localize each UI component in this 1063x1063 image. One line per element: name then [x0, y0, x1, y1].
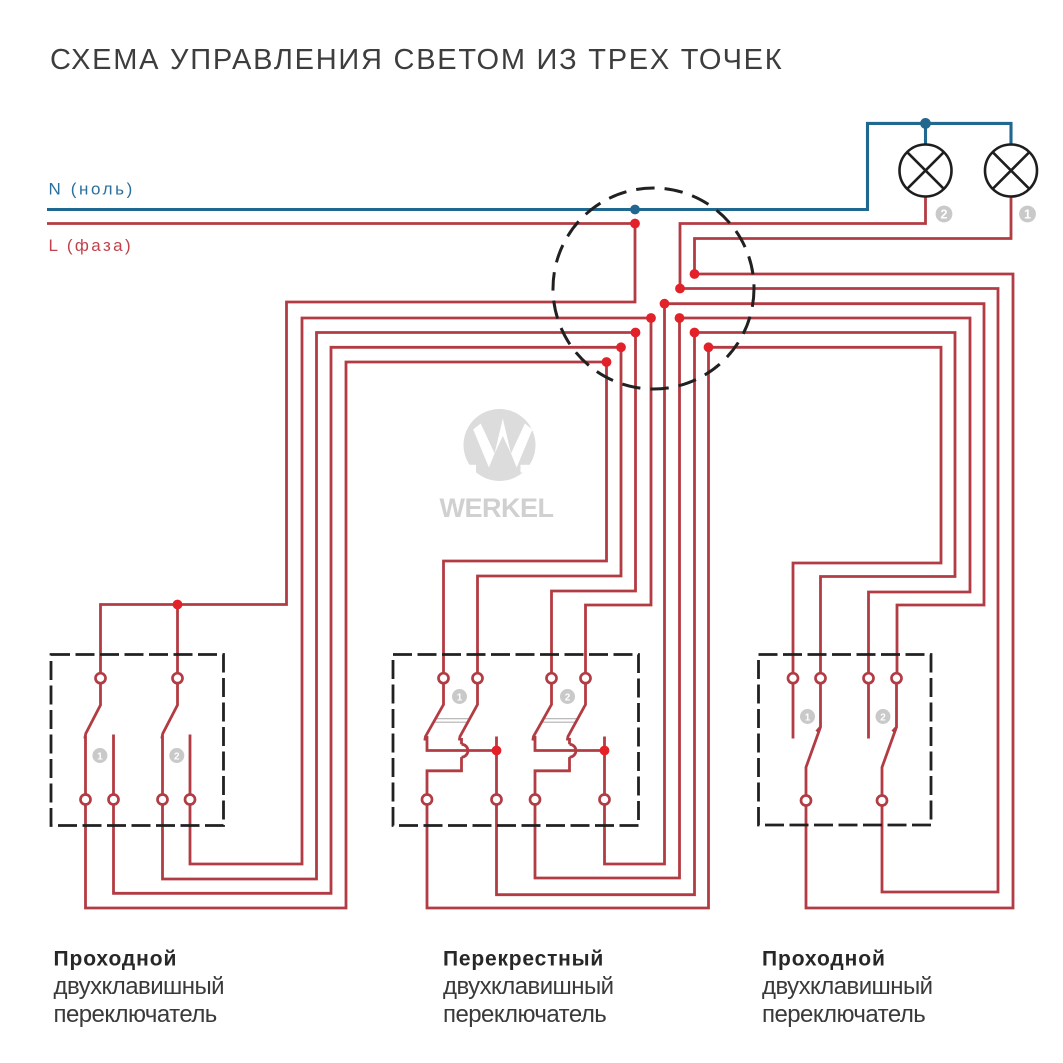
svg-text:переключатель: переключатель: [54, 1001, 217, 1028]
svg-text:переключатель: переключатель: [762, 1001, 925, 1028]
svg-text:переключатель: переключатель: [443, 1001, 606, 1028]
svg-text:2: 2: [880, 713, 886, 724]
svg-text:L (фаза): L (фаза): [49, 236, 134, 255]
svg-text:Проходной: Проходной: [54, 948, 178, 971]
svg-text:Перекрестный: Перекрестный: [443, 948, 604, 971]
svg-text:1: 1: [1024, 208, 1031, 222]
svg-text:двухклавишный: двухклавишный: [762, 973, 933, 1000]
svg-text:двухклавишный: двухклавишный: [443, 973, 614, 1000]
svg-text:WERKEL: WERKEL: [440, 493, 554, 523]
svg-text:1: 1: [97, 752, 103, 763]
svg-text:1: 1: [457, 693, 463, 704]
svg-text:СХЕМА УПРАВЛЕНИЯ СВЕТОМ ИЗ ТРЕ: СХЕМА УПРАВЛЕНИЯ СВЕТОМ ИЗ ТРЕХ ТОЧЕК: [50, 44, 783, 76]
svg-text:двухклавишный: двухклавишный: [54, 973, 225, 1000]
svg-text:2: 2: [941, 208, 948, 222]
svg-text:N (ноль): N (ноль): [49, 180, 135, 199]
svg-text:2: 2: [565, 693, 571, 704]
svg-text:1: 1: [805, 713, 811, 724]
svg-text:2: 2: [174, 752, 180, 763]
svg-text:Проходной: Проходной: [762, 948, 886, 971]
